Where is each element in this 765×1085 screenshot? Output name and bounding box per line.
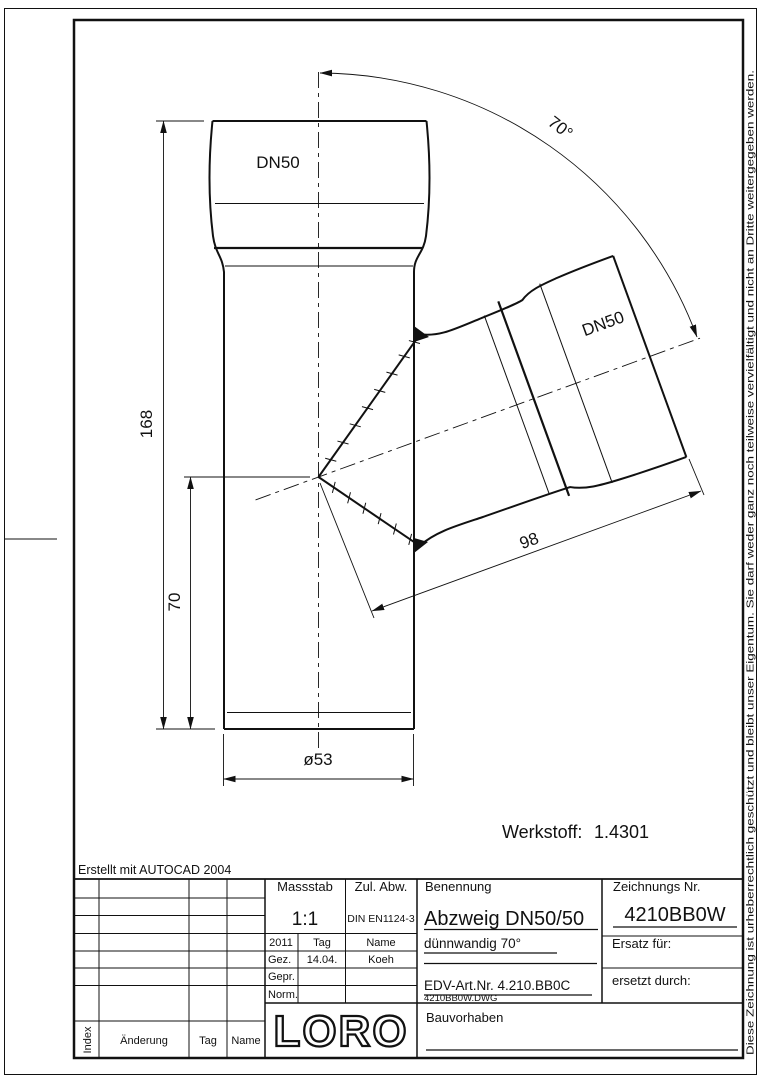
edv-art-nr: EDV-Art.Nr. 4.210.BB0C	[424, 978, 571, 993]
bauvorhaben-label: Bauvorhaben	[426, 1010, 503, 1025]
branch-socket-bead-line	[498, 301, 569, 496]
ersetzt-durch-label: ersetzt durch:	[612, 973, 691, 988]
branch-socket-end-line	[484, 316, 549, 495]
branch-socket-face	[613, 256, 686, 457]
zeichnung-nr-value: 4210BB0W	[624, 904, 725, 926]
werkstoff-value: 1.4301	[594, 822, 649, 842]
dn50-branch-label: DN50	[579, 307, 626, 340]
dn50-top-label: DN50	[256, 153, 299, 172]
dim-angle-label: 70°	[544, 112, 576, 143]
created-with-note: Erstellt mit AUTOCAD 2004	[78, 863, 231, 877]
ersatz-fuer-label: Ersatz für:	[612, 936, 671, 951]
branch-pipe	[219, 238, 737, 601]
gez-date: 14.04.	[307, 954, 338, 966]
gez-label: Gez.	[268, 954, 291, 966]
werkstoff-label: Werkstoff:	[502, 822, 582, 842]
massstab-value: 1:1	[292, 909, 318, 930]
dim-diameter-label: ø53	[303, 750, 332, 769]
revision-aenderung-label: Änderung	[120, 1035, 168, 1047]
approval-tag-header: Tag	[313, 937, 331, 949]
approval-name-header: Name	[366, 937, 395, 949]
upper-weld-seam	[284, 333, 454, 477]
zeichnung-nr-label: Zeichnungs Nr.	[613, 879, 700, 894]
lower-weld-seam	[319, 452, 421, 571]
benennung-label: Benennung	[425, 879, 492, 894]
angle-arc-70deg	[320, 73, 697, 337]
gepr-label: Gepr.	[268, 971, 295, 983]
revision-name-label: Name	[231, 1035, 260, 1047]
loro-logo: LORO	[273, 1007, 408, 1056]
benennung-value: Abzweig DN50/50	[424, 908, 584, 930]
dim-70-label: 70	[165, 593, 184, 612]
drawing-sheet: 168 70 ø53 98 70° DN50 DN50 Werkstoff: 1…	[0, 0, 765, 1080]
revision-index-label: Index	[82, 1026, 94, 1053]
gez-name: Koeh	[368, 954, 394, 966]
massstab-label: Massstab	[277, 879, 333, 894]
benennung-line2: dünnwandig 70°	[424, 936, 521, 951]
dwg-file-name: 4210BB0W.DWG	[424, 993, 497, 1004]
revision-tag-label: Tag	[199, 1035, 217, 1047]
zul-abw-value: DIN EN1124-3	[347, 913, 415, 925]
dim-line-98	[372, 491, 701, 611]
vertical-pipe	[210, 121, 430, 729]
zul-abw-label: Zul. Abw.	[355, 879, 408, 894]
cad-drawing-svg: 168 70 ø53 98 70° DN50 DN50 Werkstoff: 1…	[0, 0, 765, 1080]
norm-label: Norm.	[268, 989, 298, 1001]
dim-98-label: 98	[517, 529, 541, 553]
approval-year: 2011	[269, 937, 293, 949]
copyright-vertical-text: Diese Zeichnung ist urheberrechtlich ges…	[745, 70, 757, 1055]
dim-168-label: 168	[137, 410, 156, 438]
